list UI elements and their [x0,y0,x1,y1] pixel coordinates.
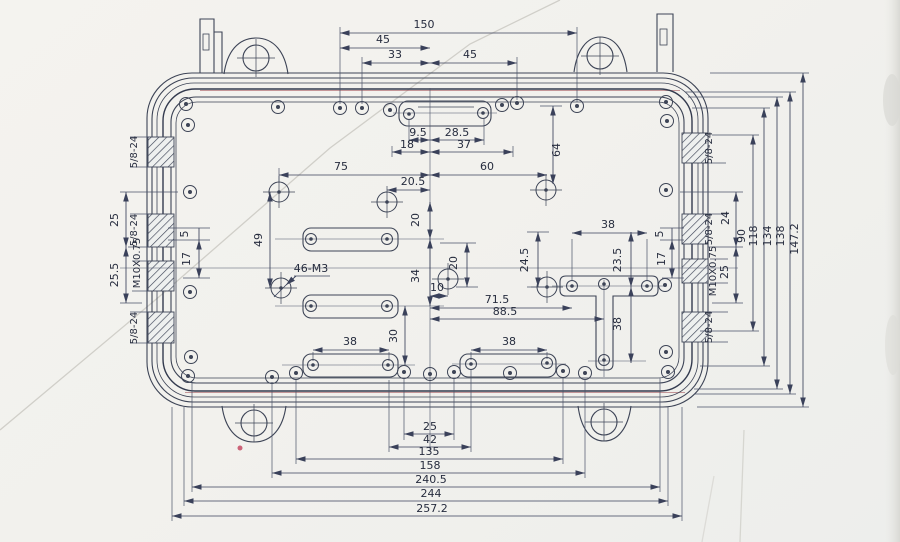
screw-boss-hole-center [663,283,667,287]
red-ink-dot [238,446,243,451]
enclosure-body [147,14,708,442]
screw-boss-hole-center [402,370,406,374]
thread-label-right-1: 5/8-24 [704,132,715,164]
dim-label-33: 33 [388,48,402,61]
slot-boss-mid-1 [303,228,398,251]
screw-boss-hole-center [508,371,512,375]
screw-boss-hole-center [452,370,456,374]
screw-boss-hole-center [338,106,342,110]
dim-label-147-2: 147.2 [788,223,801,255]
slot-hole-center [645,284,649,288]
screw-boss-hole-center [270,375,274,379]
screw-boss-hole-center [360,106,364,110]
slot-hole-center [407,112,411,116]
dim-label-left-25: 25 [108,213,121,227]
dim-label-134: 134 [761,226,774,247]
slot-hole-center [385,237,389,241]
thread-insert-right-3 [682,259,708,283]
thread-insert-left-4 [148,312,174,343]
dim-label-118: 118 [747,226,760,247]
dim-label-138: 138 [774,226,787,247]
screw-boss-hole-center [575,104,579,108]
thread-label-right-2: 5/8-24 [704,213,715,245]
dim-label-75: 75 [334,160,348,173]
slot-hole-center [385,304,389,308]
technical-drawing-canvas: 150 45 33 45 9.5 28.5 18 37 75 60 20.5 4… [0,0,900,542]
screw-boss-hole-center [276,105,280,109]
dim-label-45b: 45 [463,48,477,61]
tapped-hole-center [277,190,281,194]
slot-hole-center [309,237,313,241]
screw-boss-hole-center [583,371,587,375]
screw-boss-hole-center [664,100,668,104]
enclosure-outline-2 [152,78,703,402]
dim-label-18: 18 [400,138,414,151]
fold-crease-right [740,430,744,542]
slot-hole-center [602,358,606,362]
thread-label-left-3: M10X0.75 [132,238,143,288]
dim-label-60: 60 [480,160,494,173]
slot-hole-center [570,284,574,288]
tapped-hole-center [446,277,450,281]
dim-label-20-5: 20.5 [401,175,426,188]
dim-label-right-25: 25 [718,265,731,279]
dim-label-45a: 45 [376,33,390,46]
dim-label-left-17: 17 [180,252,193,266]
screw-boss-hole-center [515,101,519,105]
hinge-tab-slot-right [660,29,667,45]
dim-label-23-5: 23.5 [611,248,624,273]
screw-boss-hole-center [665,119,669,123]
dim-label-38-slot-right: 38 [502,335,516,348]
scanned-drawing-page: 150 45 33 45 9.5 28.5 18 37 75 60 20.5 4… [0,0,900,542]
screw-boss-hole-center [188,290,192,294]
enclosure-outline-outer [147,73,708,407]
dim-label-240-5: 240.5 [415,473,447,486]
thread-label-right-4: 5/8-24 [704,311,715,343]
wall-thread-inserts [148,133,708,343]
fold-crease-right-2 [702,476,714,542]
slot-hole-center [469,362,473,366]
screw-boss-hole-center [188,190,192,194]
slot-hole-center [545,361,549,365]
mounting-ear-top-right [574,37,627,72]
slot-hole-center [602,282,606,286]
slot-hole-center [386,363,390,367]
dim-label-38-v: 38 [611,317,624,331]
thread-callout-46-M3: 46-M3 [294,262,328,275]
enclosure-outline-3 [157,83,698,397]
hinge-tab-top-right [657,14,673,72]
dim-label-38-t: 38 [601,218,615,231]
dim-label-right-17: 17 [655,252,668,266]
dim-label-158: 158 [420,459,441,472]
thread-insert-left-1 [148,137,174,167]
dim-label-88-5: 88.5 [493,305,518,318]
tapped-hole-center [385,200,389,204]
dim-label-right-24: 24 [719,211,732,225]
dim-label-49: 49 [252,233,265,247]
thread-label-left-1: 5/8-24 [129,136,140,168]
dim-label-30: 30 [387,329,400,343]
screw-boss-hole-center [189,355,193,359]
dim-label-38-slot-left: 38 [343,335,357,348]
slot-hole-center [309,304,313,308]
dim-label-37: 37 [457,138,471,151]
mounting-hole-crosshair-lines [235,404,273,442]
mounting-hole-crosshair-lines [237,39,275,77]
thread-label-left-4: 5/8-24 [129,312,140,344]
dim-label-25-bottom: 25 [423,420,437,433]
screw-boss-hole-center [186,374,190,378]
screw-boss-hole-center [184,102,188,106]
screw-boss-hole-center [186,123,190,127]
dim-label-34: 34 [409,269,422,283]
screw-boss-hole-center [664,188,668,192]
screw-boss-hole-center [666,370,670,374]
dim-label-20a: 20 [409,213,422,227]
tapped-hole-center [544,188,548,192]
dim-label-right-5: 5 [653,231,666,238]
screw-boss-hole-center [561,369,565,373]
mounting-ear-bottom-right [578,406,631,441]
screw-boss-hole-center [428,372,432,376]
dim-label-135: 135 [419,445,440,458]
thread-insert-left-3 [148,261,174,291]
dim-label-150: 150 [414,18,435,31]
slot-boss-bottom-left [303,354,398,377]
dim-label-244: 244 [421,487,442,500]
dim-label-left-5: 5 [178,231,191,238]
dim-label-257-2: 257.2 [416,502,448,515]
dim-label-20b: 20 [447,256,460,270]
screw-boss-hole-center [388,108,392,112]
slot-hole-center [311,363,315,367]
screw-boss-hole-center [294,371,298,375]
dim-label-24-5: 24.5 [518,248,531,273]
screw-boss-hole-center [664,350,668,354]
thread-label-right-3: M10X0.75 [708,246,719,296]
screw-boss-hole-center [500,103,504,107]
thread-insert-left-2 [148,214,174,247]
dim-label-left-25-5: 25.5 [108,263,121,288]
dim-label-10: 10 [430,281,444,294]
slot-boss-mid-2 [303,295,398,318]
dim-label-64: 64 [550,143,563,157]
slot-hole-center [481,111,485,115]
hinge-tab-slot-left [203,34,209,50]
